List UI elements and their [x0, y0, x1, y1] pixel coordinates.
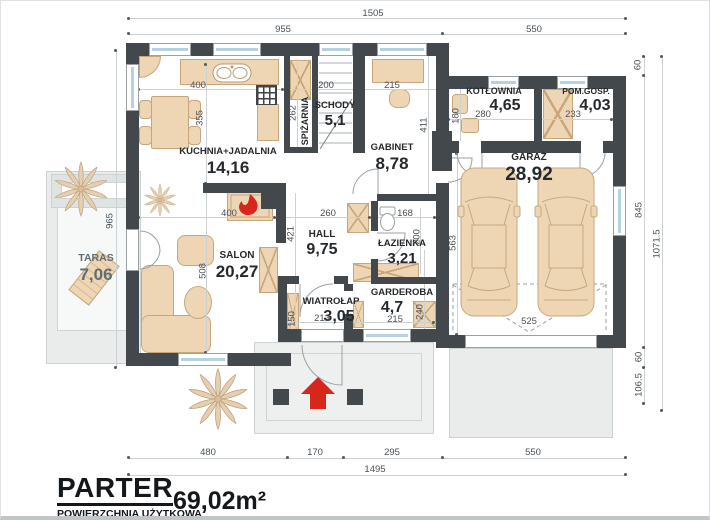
plant-living: [144, 184, 176, 216]
page-title: PARTER: [57, 475, 173, 506]
window: [149, 43, 191, 56]
room-label-wiatrolap: WIATROŁAP 3,05: [303, 297, 360, 325]
dim-dot: [441, 456, 444, 459]
dim-dot: [127, 17, 130, 20]
dim-left-taras: 965: [105, 213, 115, 229]
wall: [347, 389, 363, 405]
room-area: 9,75: [306, 242, 337, 258]
room-name: KOTŁOWNIA: [466, 87, 522, 96]
dim-spizarnia-depth: 262: [288, 105, 298, 121]
cabinet: [259, 247, 278, 293]
dim-dot: [642, 55, 645, 58]
room-name: GARAŻ: [505, 153, 553, 163]
wall: [436, 183, 449, 348]
dim-gabinet-depth: 411: [419, 117, 429, 132]
room-area: 3,21: [378, 251, 426, 266]
floor-plan: KUCHNIA+JADALNIA 14,16 SPIŻARNIA SCHODY …: [0, 0, 710, 520]
dim-dot: [127, 32, 130, 35]
window: [178, 353, 228, 366]
dim-dot: [642, 402, 645, 405]
dim-dot: [642, 74, 645, 77]
wall: [334, 276, 348, 284]
dim-right-top: 60: [633, 60, 643, 71]
dim-spizarnia-width: 200: [318, 81, 334, 91]
room-area: 4,03: [579, 98, 610, 114]
dim-kitchen-depth: 355: [195, 110, 205, 126]
wall: [371, 277, 449, 284]
room-area: 8,78: [371, 155, 414, 172]
dim-right-garage: 845: [634, 202, 644, 218]
room-label-spizarnia: SPIŻARNIA: [300, 97, 310, 146]
wall: [126, 271, 139, 366]
dim-line: [116, 50, 117, 368]
wall: [284, 147, 318, 153]
room-label-salon: SALON 20,27: [216, 251, 259, 280]
dim-hall-depth: 421: [286, 226, 296, 242]
dim-dot: [114, 366, 117, 369]
cabinet: [290, 60, 311, 100]
dim-dot: [624, 456, 627, 459]
furniture: [177, 235, 214, 266]
window: [363, 329, 411, 342]
furniture: [257, 104, 279, 141]
dim-garaz-door: 525: [521, 317, 537, 327]
dim-top-total: 1505: [362, 9, 383, 19]
wall: [287, 276, 299, 284]
room-name: GARDEROBA: [371, 288, 433, 298]
dim-bottom-garderoba: 295: [384, 448, 400, 458]
dim-line: [129, 458, 626, 459]
boiler-room-door: [457, 152, 482, 177]
furniture: [139, 126, 152, 145]
room-name: GABINET: [371, 143, 414, 153]
door-opening: [465, 335, 597, 348]
dim-bottom-entry: 170: [307, 448, 323, 458]
garage-apron: [449, 348, 613, 438]
dim-kitchen-bottom: 400: [221, 209, 237, 219]
wall: [278, 276, 287, 342]
door-opening: [126, 229, 139, 271]
dim-right-total: 1071.5: [652, 229, 662, 258]
room-name: HALL: [306, 230, 337, 240]
coffee-table: [184, 286, 212, 319]
dim-lazienka-width: 168: [397, 209, 413, 219]
dim-kitchen-top: 400: [190, 81, 206, 91]
furniture: [188, 126, 201, 145]
car-left: [458, 168, 520, 316]
furniture: [139, 100, 152, 119]
room-name: TARAS: [78, 253, 113, 264]
dim-right-step: 60: [634, 352, 644, 363]
dim-dot: [441, 32, 444, 35]
dim-line: [365, 89, 436, 90]
kitchen-corner-shelf: [139, 56, 161, 78]
dim-top-left: 955: [275, 25, 291, 35]
room-name: WIATROŁAP: [303, 297, 360, 307]
room-area: 14,16: [179, 159, 276, 176]
wall: [411, 329, 449, 342]
furniture: [141, 315, 211, 353]
furniture: [151, 96, 189, 149]
room-label-taras: TARAS 7,06: [78, 253, 113, 283]
wall: [344, 284, 353, 291]
dim-dot: [624, 32, 627, 35]
wall: [126, 353, 178, 366]
dim-line: [129, 475, 626, 476]
wall: [126, 43, 139, 64]
room-area: 28,92: [505, 165, 553, 184]
dim-dot: [204, 63, 207, 66]
wall: [377, 194, 449, 201]
dim-dot: [642, 366, 645, 369]
room-name: SCHODY: [315, 101, 356, 111]
wall: [371, 201, 378, 231]
room-label-gabinet: GABINET 8,78: [371, 143, 414, 172]
dim-dot: [624, 473, 627, 476]
dim-bottom-total: 1495: [364, 465, 385, 475]
dim-salon-depth: 508: [198, 263, 208, 279]
dim-line: [139, 89, 284, 90]
wall: [261, 185, 283, 209]
dim-hall-width: 260: [320, 209, 336, 219]
wall: [449, 335, 465, 348]
room-area: 20,27: [216, 263, 259, 280]
dim-wiatrolap-depth: 150: [287, 311, 297, 327]
utility-room-door: [580, 152, 605, 177]
wall: [126, 111, 139, 229]
dim-dot: [642, 346, 645, 349]
cabinet: [347, 203, 369, 233]
dim-bottom-salon: 480: [200, 448, 216, 458]
dim-dot: [286, 456, 289, 459]
window: [319, 43, 353, 56]
furniture: [389, 89, 410, 108]
room-area: 4,65: [488, 98, 522, 114]
dim-garaz-depth: 563: [448, 235, 458, 251]
dim-dot: [114, 49, 117, 52]
dim-line: [129, 34, 626, 35]
wall: [534, 89, 542, 141]
window: [213, 43, 261, 56]
plant-entrance: [188, 369, 247, 429]
dim-garderoba-depth: 240: [415, 304, 425, 320]
room-name: POM.GOSP.: [561, 87, 610, 96]
dim-lazienka-depth: 200: [412, 229, 422, 245]
wall: [273, 389, 289, 405]
dim-dot: [624, 17, 627, 20]
dim-gabinet-width: 215: [384, 81, 400, 91]
wall: [432, 131, 452, 171]
wall: [603, 141, 613, 153]
room-label-kuchnia: KUCHNIA+JADALNIA 14,16: [179, 147, 276, 176]
dim-line: [297, 59, 298, 147]
wall: [353, 43, 365, 153]
dim-bottom-garage: 550: [525, 448, 541, 458]
dim-top-right: 550: [526, 25, 542, 35]
dim-dot: [432, 321, 435, 324]
dim-line: [206, 64, 207, 353]
room-area: 7,06: [78, 266, 113, 283]
toilet-icon: [380, 207, 395, 231]
car-right: [535, 168, 597, 316]
door-opening: [301, 329, 344, 342]
dim-dot: [127, 456, 130, 459]
room-area: 5,1: [315, 113, 356, 128]
terrace-planter-slot: [61, 182, 127, 199]
dim-pomgosp-width: 233: [565, 110, 581, 120]
dim-wiatrolap-width: 213: [314, 314, 330, 324]
dim-kotlownia-width: 280: [475, 110, 491, 120]
dim-dot: [660, 409, 663, 412]
dim-dot: [660, 55, 663, 58]
dim-right-apron: 106.5: [634, 373, 644, 397]
dim-garderoba-width: 215: [387, 315, 403, 325]
window: [377, 43, 427, 56]
cooktop-icon: [256, 85, 277, 105]
wall: [228, 353, 291, 366]
dim-line: [449, 119, 613, 120]
room-name: KUCHNIA+JADALNIA: [179, 147, 276, 157]
office-door: [353, 169, 378, 194]
room-label-garaz: GARAŻ 28,92: [505, 153, 553, 184]
wall: [284, 56, 290, 147]
dim-line: [285, 217, 436, 218]
dim-line: [139, 217, 276, 218]
dim-dot: [342, 456, 345, 459]
dim-kotlownia-depth: 180: [451, 108, 461, 124]
wall: [344, 329, 363, 342]
window: [126, 64, 139, 111]
room-label-hall: HALL 9,75: [306, 230, 337, 258]
usable-area-value: 69,02m²: [173, 487, 266, 516]
room-name: SALON: [216, 251, 259, 261]
room-label-schody: SCHODY 5,1: [315, 101, 356, 128]
terrace-door-leaf-top: [140, 231, 160, 251]
window: [613, 186, 626, 236]
wall: [597, 335, 626, 348]
furniture: [461, 118, 479, 133]
